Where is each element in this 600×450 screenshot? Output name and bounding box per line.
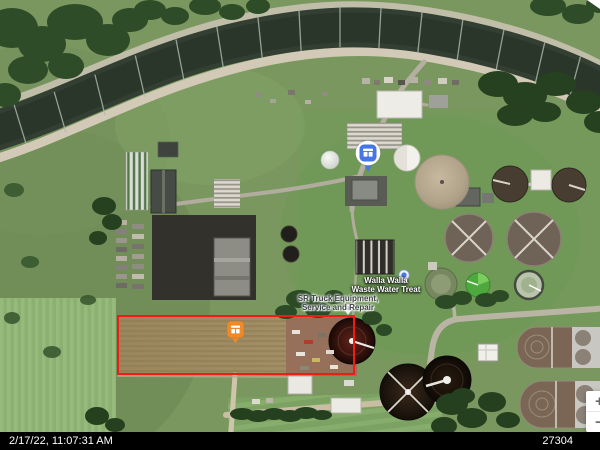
poi-label-line: SR Truck Equipment, — [286, 294, 390, 303]
orange-field-marker[interactable] — [226, 320, 245, 343]
dome-tank — [321, 151, 339, 169]
storefront-icon — [226, 320, 245, 343]
zoom-out-button[interactable]: − — [586, 411, 600, 432]
video-frame: Walla Walla Waste Water Treat SR Truck E… — [0, 0, 600, 450]
building-white-large — [377, 91, 422, 118]
control-building — [478, 344, 498, 361]
building-annex — [429, 95, 448, 108]
storefront-icon — [354, 139, 382, 173]
building-between-tanks — [531, 170, 551, 190]
shed-white — [331, 398, 361, 413]
building-office — [214, 238, 250, 296]
building-small-top — [158, 142, 178, 157]
poi-label-sr-truck[interactable]: SR Truck Equipment, Service and Repair — [286, 294, 390, 312]
frame-counter: 27304 — [542, 435, 573, 447]
poi-label-wwtp[interactable]: Walla Walla Waste Water Treat — [324, 276, 448, 294]
poi-label-line: Service and Repair — [286, 303, 390, 312]
timestamp: 2/17/22, 11:07:31 AM — [9, 435, 113, 447]
digester-tank — [283, 246, 299, 262]
poi-label-line: Walla Walla — [324, 276, 448, 285]
aeration-basins — [126, 152, 148, 210]
status-bar: 2/17/22, 11:07:31 AM 27304 — [0, 432, 600, 450]
blue-wwtp-marker[interactable] — [354, 139, 382, 173]
zoom-in-button[interactable]: + — [586, 391, 600, 411]
zoom-control: + − — [586, 391, 600, 432]
poi-label-line: Waste Water Treat — [324, 285, 448, 294]
digester-tank — [281, 226, 297, 242]
rect-aeration-tanks — [356, 240, 394, 274]
barn-white — [288, 376, 312, 394]
building-mid — [352, 180, 378, 200]
drying-beds-left — [214, 179, 240, 208]
map-canvas[interactable]: Walla Walla Waste Water Treat SR Truck E… — [0, 0, 600, 432]
